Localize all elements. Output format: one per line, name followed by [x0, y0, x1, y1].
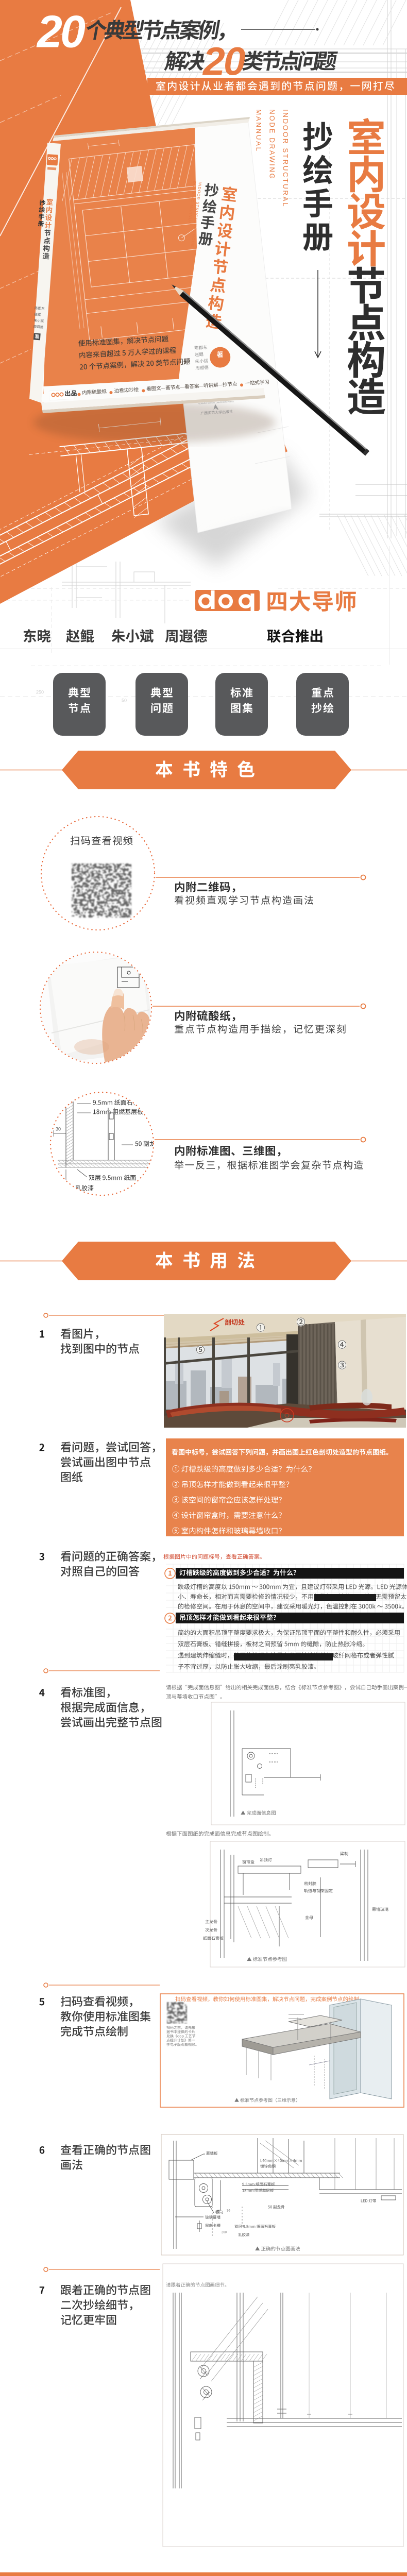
svg-text:NODE DRAWING: NODE DRAWING: [268, 109, 276, 180]
svg-text:20: 20: [36, 6, 86, 57]
svg-text:MANNUAL: MANNUAL: [255, 109, 262, 152]
svg-text:250: 250: [36, 690, 44, 695]
svg-text:INDOOR STRUCTURAL: INDOOR STRUCTURAL: [281, 109, 289, 208]
svg-text:30: 30: [56, 1127, 61, 1132]
svg-text:20: 20: [202, 39, 246, 83]
svg-text:36: 36: [227, 2209, 230, 2212]
svg-text:50: 50: [122, 698, 127, 703]
svg-text:200: 200: [222, 2231, 227, 2234]
